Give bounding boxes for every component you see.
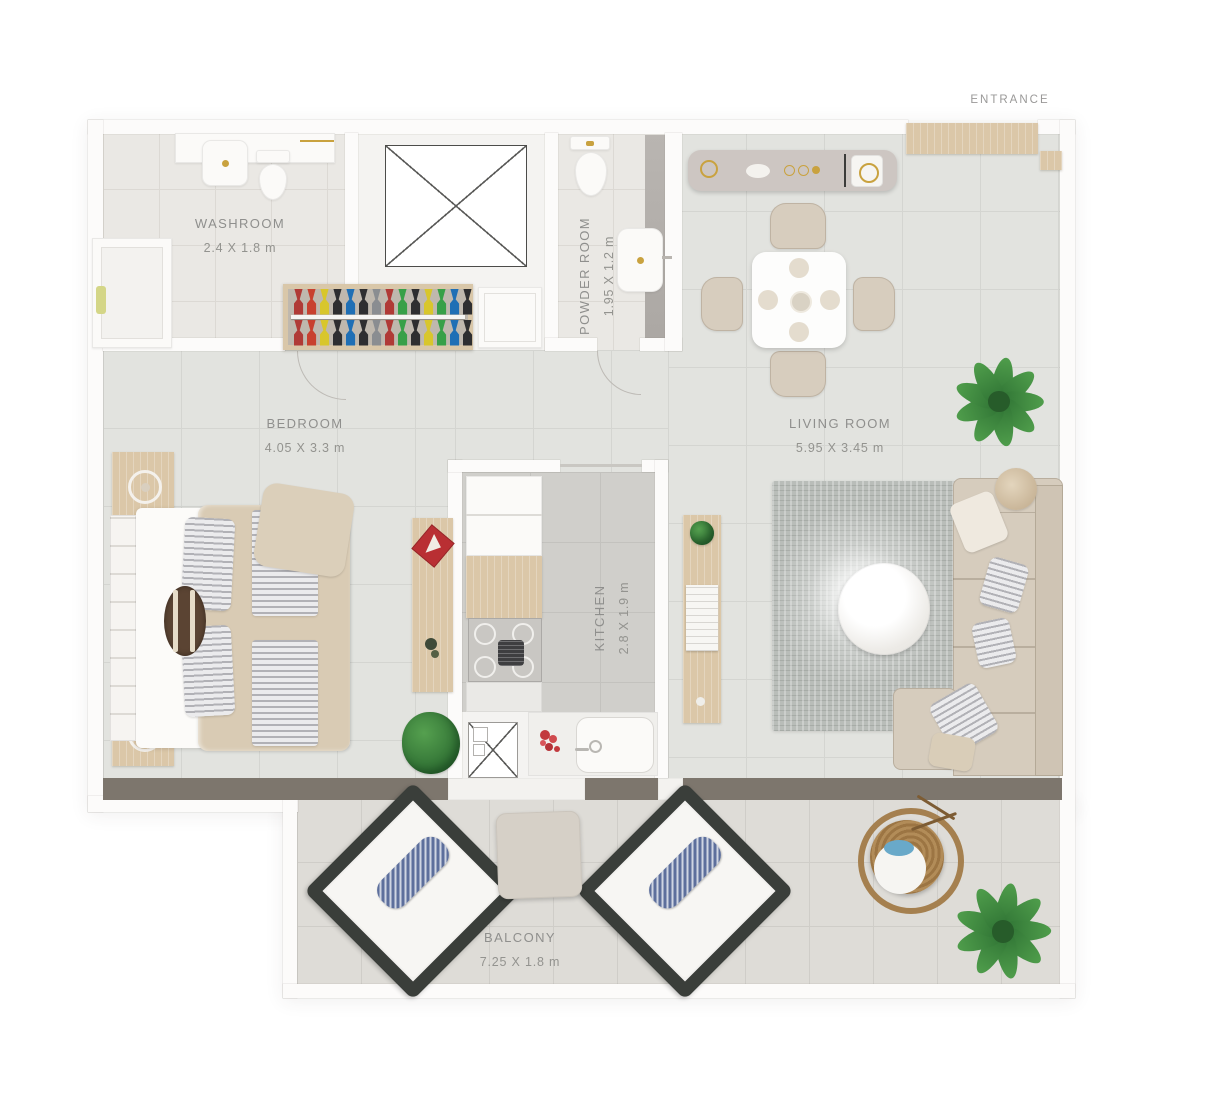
burner-1 (474, 623, 496, 645)
desk-papers (686, 585, 718, 651)
balcony-door-opening (448, 778, 585, 800)
place-setting-top (789, 258, 809, 278)
powder-label: POWDER ROOM 1.95 X 1.2 m (572, 191, 622, 361)
hatch-square-2 (473, 744, 485, 756)
hanger (463, 289, 473, 315)
powder-sink-drain (637, 257, 644, 264)
balcony-name: BALCONY (420, 925, 620, 950)
washroom-label: WASHROOM 2.4 X 1.8 m (140, 211, 340, 261)
entrance-step (1040, 151, 1062, 170)
console-ring-2 (798, 165, 809, 176)
hanger (398, 289, 408, 315)
hanger (398, 320, 408, 346)
plant-core (988, 391, 1009, 412)
balcony-dims: 7.25 X 1.8 m (420, 950, 620, 975)
sofa-pillow-5 (927, 731, 976, 772)
console-ring-1 (784, 165, 795, 176)
bedroom-corner-plant (402, 712, 460, 774)
hanger (372, 320, 382, 346)
powder-toilet-tank (570, 136, 610, 150)
washroom-dims: 2.4 X 1.8 m (140, 236, 340, 261)
hanger (320, 320, 330, 346)
hanger (411, 320, 421, 346)
dining-chair-right (853, 277, 895, 331)
place-setting-bottom (789, 322, 809, 342)
console-lamp (851, 155, 883, 187)
hanger (346, 289, 356, 315)
kitchen-label: KITCHEN 2.8 X 1.9 m (587, 543, 637, 693)
console-table (688, 150, 897, 191)
sofa-backrest (1035, 485, 1063, 776)
dining-chair-top (770, 203, 826, 249)
hanger-row-top (292, 288, 474, 315)
hanger (359, 289, 369, 315)
balcony-label: BALCONY 7.25 X 1.8 m (420, 925, 620, 975)
console-lamp-ring (859, 163, 879, 183)
bed-runner-bottom (252, 640, 318, 746)
hanger (385, 289, 395, 315)
kitchen-pass-rail (560, 464, 642, 467)
hatch-square-1 (473, 727, 488, 742)
laundry-cabinet (478, 287, 542, 348)
kitchen-sink (576, 717, 654, 773)
sink-drain (589, 740, 602, 753)
dining-chair-bottom (770, 351, 826, 397)
bed-accent-pillow (164, 586, 206, 656)
console-decor-ring (700, 160, 718, 178)
living-dims: 5.95 X 3.45 m (740, 436, 940, 461)
kitchen-sink-counter (528, 712, 658, 776)
console-desk (683, 515, 721, 723)
console-dish (746, 164, 770, 178)
hanger (320, 289, 330, 315)
table-centerpiece (790, 291, 812, 313)
hanger (307, 289, 317, 315)
corridor-floor (455, 350, 680, 472)
place-setting-left (758, 290, 778, 310)
bedroom-dresser (412, 518, 453, 692)
coffee-table (838, 563, 930, 655)
washroom-sink (202, 140, 248, 186)
hanger (424, 289, 434, 315)
living-label: LIVING ROOM 5.95 X 3.45 m (740, 411, 940, 461)
powder-toilet-button (586, 141, 594, 146)
hanger (437, 289, 447, 315)
sofa-round-pillow (995, 468, 1037, 510)
powder-sink (617, 228, 663, 292)
powder-faucet (662, 256, 672, 259)
kitchen-top-wall-a (448, 460, 560, 472)
hanger (450, 320, 460, 346)
balcony-plant (962, 888, 1044, 974)
red-book (411, 524, 455, 568)
console-divider (844, 154, 846, 187)
kitchen-name: KITCHEN (587, 543, 612, 693)
place-setting-right (820, 290, 840, 310)
hanger (346, 320, 356, 346)
balcony-table (496, 811, 583, 900)
hanger (463, 320, 473, 346)
fridge (466, 476, 542, 556)
washroom-name: WASHROOM (140, 211, 340, 236)
desk-knob (696, 697, 705, 706)
powder-left-wall (545, 133, 558, 350)
entrance-wood-floor (906, 123, 1038, 154)
stove-grill (498, 640, 524, 666)
floor-plan: ENTRANCE (0, 0, 1217, 1100)
hanger (333, 289, 343, 315)
console-ring-3 (812, 166, 820, 174)
kitchen-shaft-hatch (468, 722, 518, 778)
hanger-row-bottom (292, 319, 474, 346)
powder-dims: 1.95 X 1.2 m (597, 191, 622, 361)
powder-name: POWDER ROOM (572, 191, 597, 361)
unit-balcony-wall-b (585, 778, 658, 800)
hanger (411, 289, 421, 315)
powder-living-wall (665, 133, 682, 351)
stove (468, 618, 542, 682)
hanger (359, 320, 369, 346)
wall-top-left (88, 120, 908, 134)
kitchen-counter (466, 556, 542, 618)
laundry-cabinet-door (484, 293, 536, 342)
bed-headboard (110, 515, 136, 741)
shower-shelf (96, 286, 106, 314)
bedroom-label: BEDROOM 4.05 X 3.3 m (205, 411, 405, 461)
dining-table (752, 252, 846, 348)
hanger (450, 289, 460, 315)
hanger (372, 289, 382, 315)
entrance-label: ENTRANCE (925, 94, 1095, 106)
fridge-door-seam (466, 514, 542, 516)
wall-left (88, 120, 103, 812)
kitchen-marble-slab (466, 682, 542, 712)
burner-3 (474, 656, 496, 678)
accent-pillow-strap-1 (173, 590, 178, 652)
dresser-decor (425, 638, 437, 650)
closet (283, 284, 473, 350)
washroom-sink-drain (222, 160, 229, 167)
bedroom-name: BEDROOM (205, 411, 405, 436)
sink-faucet (575, 748, 589, 751)
hanger (294, 320, 304, 346)
washroom-vanity-counter (175, 133, 335, 163)
plant-core (992, 920, 1013, 942)
book-page (421, 534, 445, 558)
living-name: LIVING ROOM (740, 411, 940, 436)
kitchen-dims: 2.8 X 1.9 m (612, 543, 637, 693)
unit-balcony-wall-c (683, 778, 1062, 800)
hanger (385, 320, 395, 346)
living-plant (958, 362, 1040, 442)
washroom-towel-bar (300, 140, 334, 142)
bed-big-pillow (252, 481, 356, 578)
washroom-toilet-tank (256, 150, 290, 163)
egg-chair-blue-pillow (884, 840, 914, 856)
elevator-shaft (385, 145, 527, 267)
desk-plant (690, 521, 714, 545)
hanger (294, 289, 304, 315)
hanging-egg-chair (858, 806, 958, 910)
hanger (437, 320, 447, 346)
hanger (307, 320, 317, 346)
bedroom-dims: 4.05 X 3.3 m (205, 436, 405, 461)
unit-balcony-wall-a (103, 778, 448, 800)
flowers (540, 730, 550, 740)
hanger (424, 320, 434, 346)
dining-chair-left (701, 277, 743, 331)
hanger (333, 320, 343, 346)
accent-pillow-strap-2 (190, 590, 195, 652)
balcony-wall-left (283, 798, 297, 998)
